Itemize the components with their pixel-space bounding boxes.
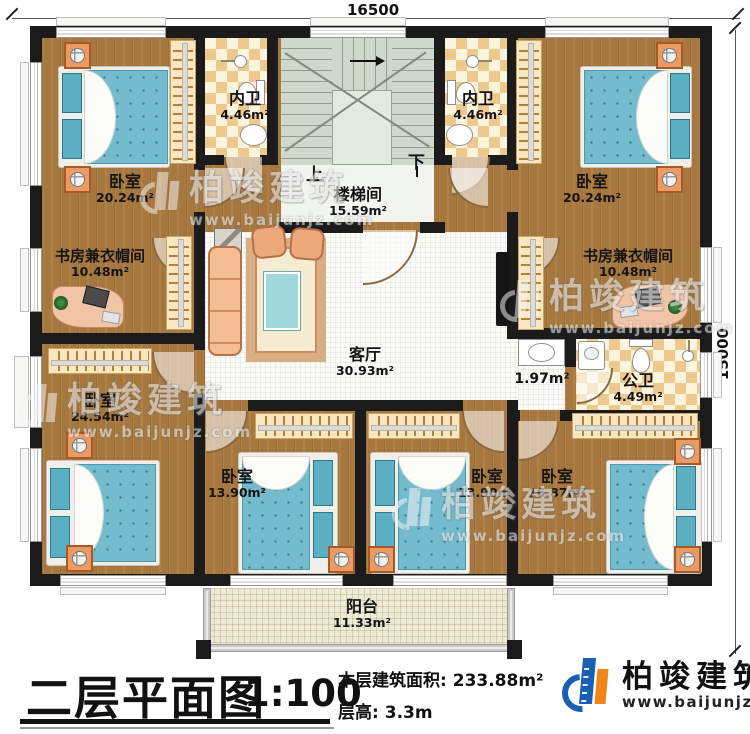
floor-height-text: 层高: 3.3m bbox=[338, 698, 433, 723]
shower-arm bbox=[221, 60, 235, 62]
brand-name: 柏竣建筑 bbox=[622, 662, 750, 693]
nightstand bbox=[64, 42, 91, 69]
stair-up-label: 上 bbox=[306, 160, 323, 185]
nightstand bbox=[656, 42, 683, 69]
armchair bbox=[250, 224, 287, 259]
room-label-bedroom-tr: 卧室 20.24m² bbox=[563, 173, 621, 204]
wall bbox=[194, 212, 205, 350]
balcony-column bbox=[196, 640, 211, 659]
closet bbox=[48, 348, 152, 374]
dimension-line-right bbox=[735, 30, 736, 654]
window-sill bbox=[545, 17, 669, 26]
closet bbox=[255, 413, 353, 439]
wall bbox=[355, 411, 366, 574]
shower-arm bbox=[478, 60, 492, 62]
nightstand bbox=[66, 432, 93, 459]
closet bbox=[166, 236, 192, 330]
room-label-bedroom-br: 卧室 16.87m² bbox=[528, 468, 586, 499]
closet bbox=[572, 413, 698, 439]
room-label-study-right: 书房兼衣帽间 10.48m² bbox=[583, 248, 673, 278]
room-label-hall: 1.97m² bbox=[514, 372, 569, 387]
window-sill bbox=[713, 247, 722, 323]
sofa bbox=[208, 246, 242, 356]
closet bbox=[518, 236, 544, 330]
window-sill bbox=[553, 587, 668, 595]
room-label-stairwell: 楼梯间 15.59m² bbox=[329, 186, 387, 217]
title-underline-thin bbox=[20, 727, 334, 729]
wall bbox=[420, 222, 445, 233]
wall bbox=[30, 333, 205, 344]
room-label-bath-left: 内卫 4.46m² bbox=[220, 90, 269, 121]
sink bbox=[240, 124, 267, 146]
window bbox=[56, 27, 166, 38]
window-sill bbox=[20, 448, 29, 542]
balcony-column bbox=[507, 640, 522, 659]
stair-down-tick bbox=[416, 166, 418, 177]
window bbox=[700, 352, 712, 398]
tv bbox=[496, 252, 509, 326]
window bbox=[30, 62, 42, 186]
window bbox=[700, 247, 712, 323]
window-sill bbox=[60, 587, 166, 595]
window-sill bbox=[713, 352, 722, 398]
window-sill bbox=[20, 248, 29, 312]
brand-website: www.baijunjz.com bbox=[622, 693, 750, 711]
closet bbox=[170, 40, 196, 164]
sink bbox=[446, 124, 473, 146]
room-label-balcony: 阳台 11.33m² bbox=[333, 598, 391, 629]
brand-logo-icon bbox=[562, 658, 614, 714]
plant bbox=[668, 300, 682, 314]
wall bbox=[194, 155, 224, 165]
window-to-balcony bbox=[230, 575, 343, 586]
floor-plan: 16500 15000 bbox=[0, 0, 750, 734]
window bbox=[60, 575, 166, 586]
window bbox=[30, 248, 42, 312]
window bbox=[553, 575, 668, 586]
nightstand bbox=[328, 546, 355, 573]
pillow bbox=[375, 460, 395, 506]
wall bbox=[248, 400, 463, 411]
window bbox=[30, 356, 42, 428]
room-label-bath-right: 内卫 4.46m² bbox=[453, 90, 502, 121]
armchair bbox=[289, 227, 326, 262]
nightstand bbox=[656, 166, 683, 193]
wall bbox=[194, 394, 205, 574]
pillow bbox=[313, 460, 333, 506]
bay-window-sill bbox=[14, 356, 29, 428]
nightstand bbox=[674, 438, 701, 465]
nightstand bbox=[66, 545, 93, 572]
window bbox=[545, 27, 669, 38]
wall bbox=[565, 339, 576, 367]
coffee-table bbox=[264, 272, 300, 330]
wall bbox=[488, 155, 518, 165]
nightstand bbox=[64, 166, 91, 193]
pillow bbox=[676, 466, 696, 510]
nightstand bbox=[368, 546, 395, 573]
title-underline bbox=[20, 719, 330, 724]
pillow bbox=[670, 73, 690, 113]
wall bbox=[434, 155, 452, 165]
brand-block: 柏竣建筑 www.baijunjz.com bbox=[562, 658, 750, 714]
window-to-balcony bbox=[393, 575, 507, 586]
pillow bbox=[50, 468, 70, 510]
shower-cord bbox=[688, 340, 690, 352]
shower-head-icon bbox=[234, 55, 247, 68]
wall bbox=[434, 38, 445, 160]
stair-direction-arrow bbox=[350, 60, 376, 62]
pillow bbox=[62, 73, 82, 113]
room-label-bedroom-left: 卧室 24.54m² bbox=[71, 392, 129, 423]
window-sill bbox=[56, 17, 166, 26]
room-label-bedroom-b1: 卧室 13.90m² bbox=[208, 468, 266, 499]
closet bbox=[516, 40, 542, 164]
window bbox=[310, 27, 406, 38]
window-sill bbox=[20, 62, 29, 186]
closet bbox=[368, 413, 460, 439]
stair-arrow-head bbox=[376, 56, 385, 66]
toilet-tank bbox=[629, 339, 653, 347]
washing-machine bbox=[578, 341, 605, 370]
plant bbox=[54, 296, 68, 310]
floor-area-text: 本层建筑面积: 233.88m² bbox=[338, 666, 544, 691]
room-label-bedroom-tl: 卧室 20.24m² bbox=[96, 173, 154, 204]
room-label-study-left: 书房兼衣帽间 10.48m² bbox=[55, 248, 145, 278]
window bbox=[30, 448, 42, 542]
balcony-parapet bbox=[203, 644, 515, 652]
pillow bbox=[62, 119, 82, 159]
sink bbox=[528, 343, 555, 362]
nightstand bbox=[674, 546, 701, 573]
window-sill bbox=[310, 17, 406, 26]
toilet bbox=[632, 348, 650, 373]
wall bbox=[260, 155, 278, 165]
window-sill bbox=[713, 448, 722, 542]
room-label-bath-public: 公卫 4.49m² bbox=[613, 372, 662, 403]
pillow bbox=[670, 119, 690, 159]
room-label-bedroom-b2: 卧室 13.90m² bbox=[458, 468, 516, 499]
room-label-living: 客厅 30.93m² bbox=[336, 346, 394, 377]
